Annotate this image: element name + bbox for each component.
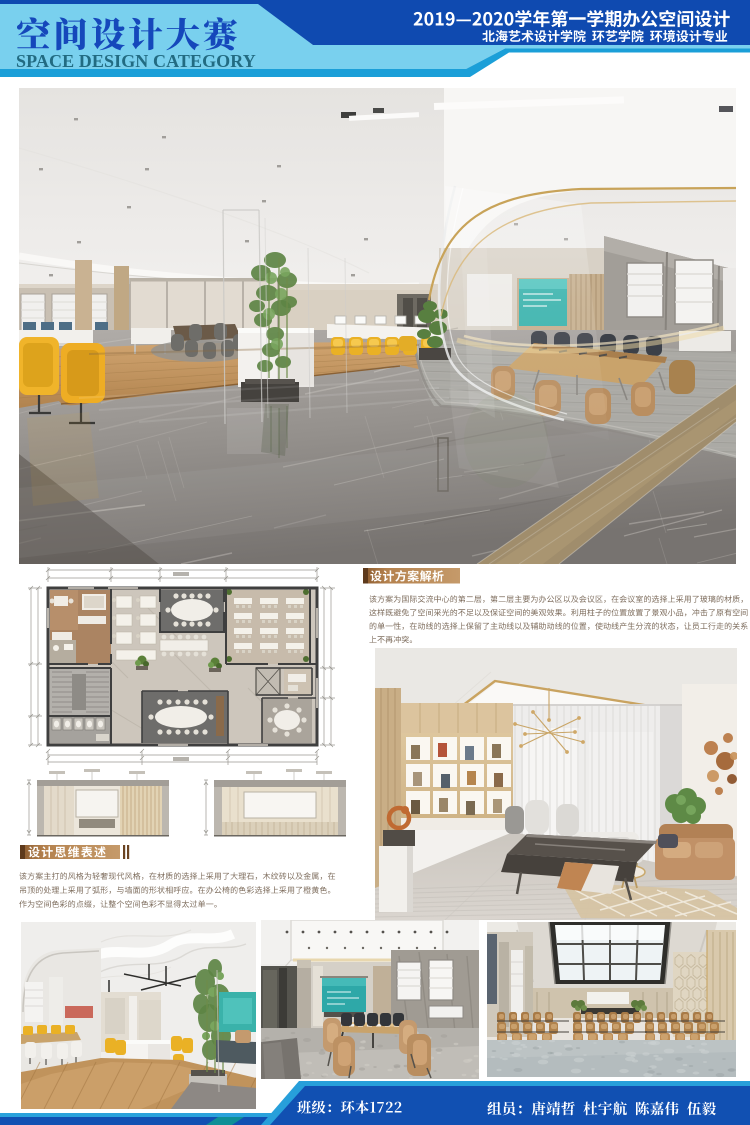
svg-text:SPACE DESIGN CATEGORY: SPACE DESIGN CATEGORY xyxy=(16,51,256,71)
